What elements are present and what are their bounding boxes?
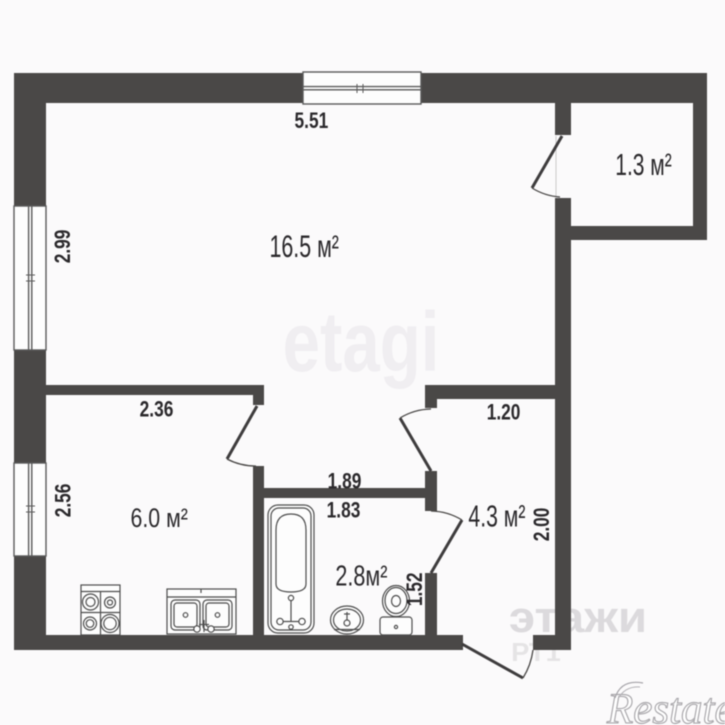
svg-text:этажи: этажи [509, 593, 647, 642]
svg-text:4.3 м²: 4.3 м² [468, 499, 525, 534]
svg-text:1.20: 1.20 [487, 401, 521, 426]
svg-text:16.5 м²: 16.5 м² [269, 229, 338, 264]
svg-text:5.51: 5.51 [295, 109, 329, 134]
svg-text:2.8м²: 2.8м² [335, 561, 387, 593]
svg-text:6.0 м²: 6.0 м² [131, 504, 188, 534]
svg-text:2.00: 2.00 [530, 508, 555, 542]
svg-text:1.3 м²: 1.3 м² [615, 147, 672, 182]
svg-text:2.36: 2.36 [140, 397, 174, 422]
svg-text:1.83: 1.83 [327, 499, 361, 524]
svg-text:1.89: 1.89 [328, 470, 362, 495]
svg-text:1.52: 1.52 [403, 572, 428, 606]
svg-text:2.56: 2.56 [51, 484, 76, 518]
svg-text:etagi: etagi [283, 296, 440, 390]
svg-text:2.99: 2.99 [51, 230, 76, 264]
